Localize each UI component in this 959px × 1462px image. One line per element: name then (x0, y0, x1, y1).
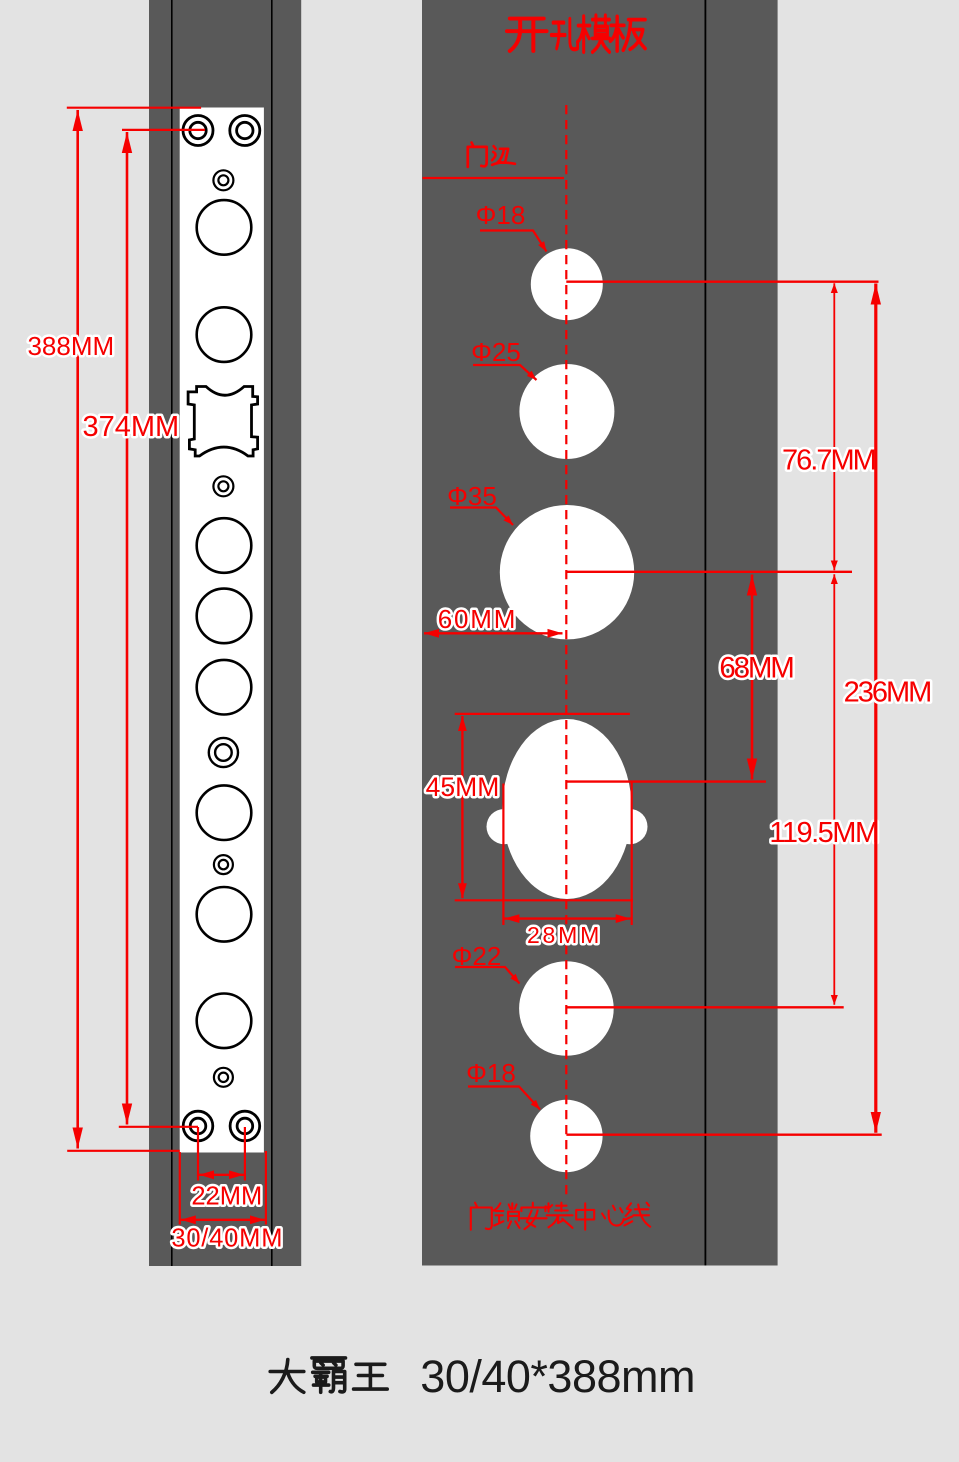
svg-text:236MM: 236MM (844, 677, 931, 709)
svg-text:Φ25: Φ25 (471, 337, 521, 367)
svg-text:374MM: 374MM (82, 411, 179, 443)
svg-text:60MM: 60MM (438, 604, 517, 634)
svg-text:45MM: 45MM (426, 772, 500, 802)
svg-text:Φ35: Φ35 (447, 481, 497, 511)
svg-text:119.5MM: 119.5MM (769, 817, 877, 849)
svg-text:30/40*388mm: 30/40*388mm (420, 1351, 695, 1402)
svg-text:76.7MM: 76.7MM (782, 445, 875, 477)
svg-text:388MM: 388MM (27, 331, 114, 361)
svg-text:Φ22: Φ22 (452, 941, 502, 971)
svg-text:Φ18: Φ18 (476, 200, 526, 230)
svg-text:28MM: 28MM (527, 922, 602, 948)
svg-text:22MM: 22MM (191, 1183, 262, 1211)
svg-text:Φ18: Φ18 (466, 1058, 516, 1088)
svg-text:30/40MM: 30/40MM (171, 1225, 283, 1253)
svg-text:68MM: 68MM (719, 652, 793, 685)
